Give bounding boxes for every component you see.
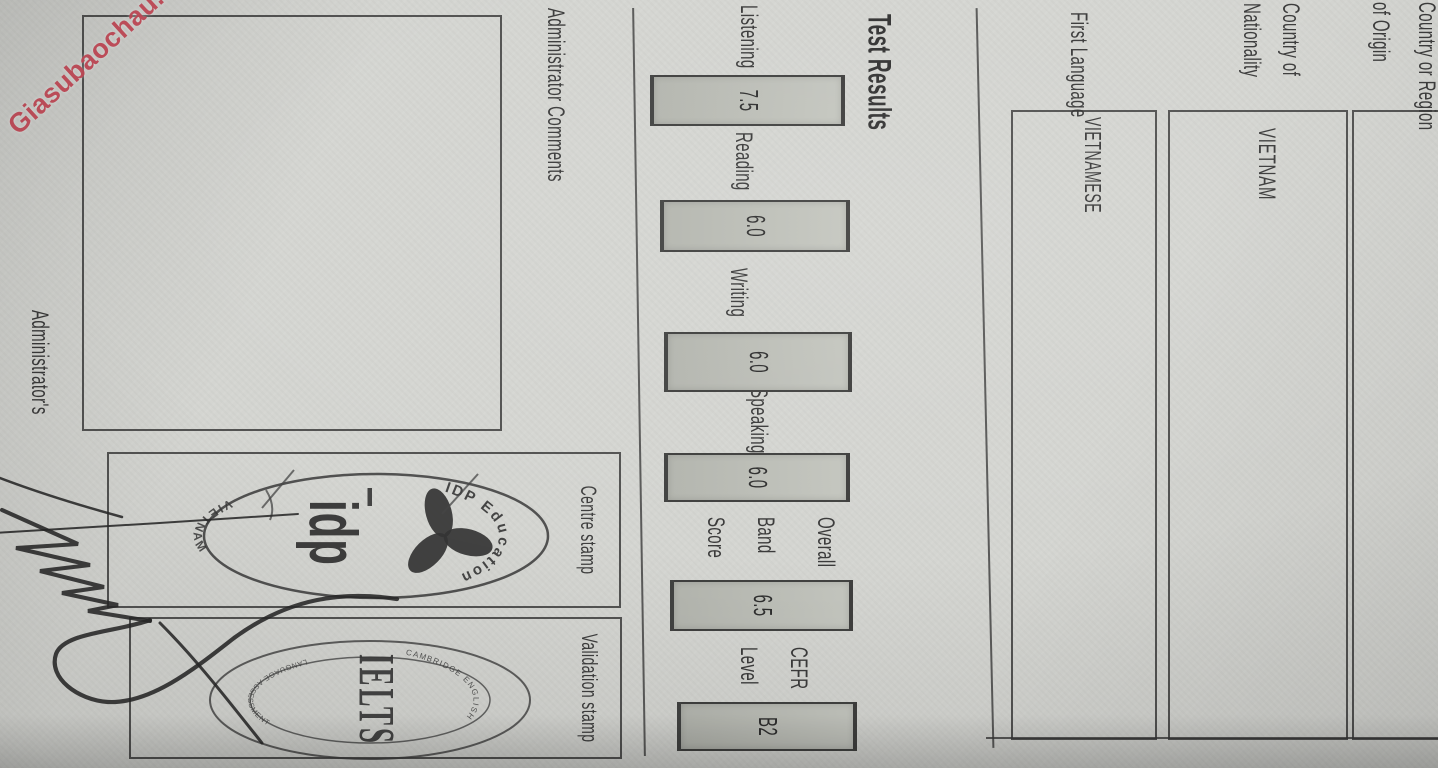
signature-ink [0,0,1438,768]
trf-photo: Country or Region of Origin Country of N… [0,0,1438,768]
